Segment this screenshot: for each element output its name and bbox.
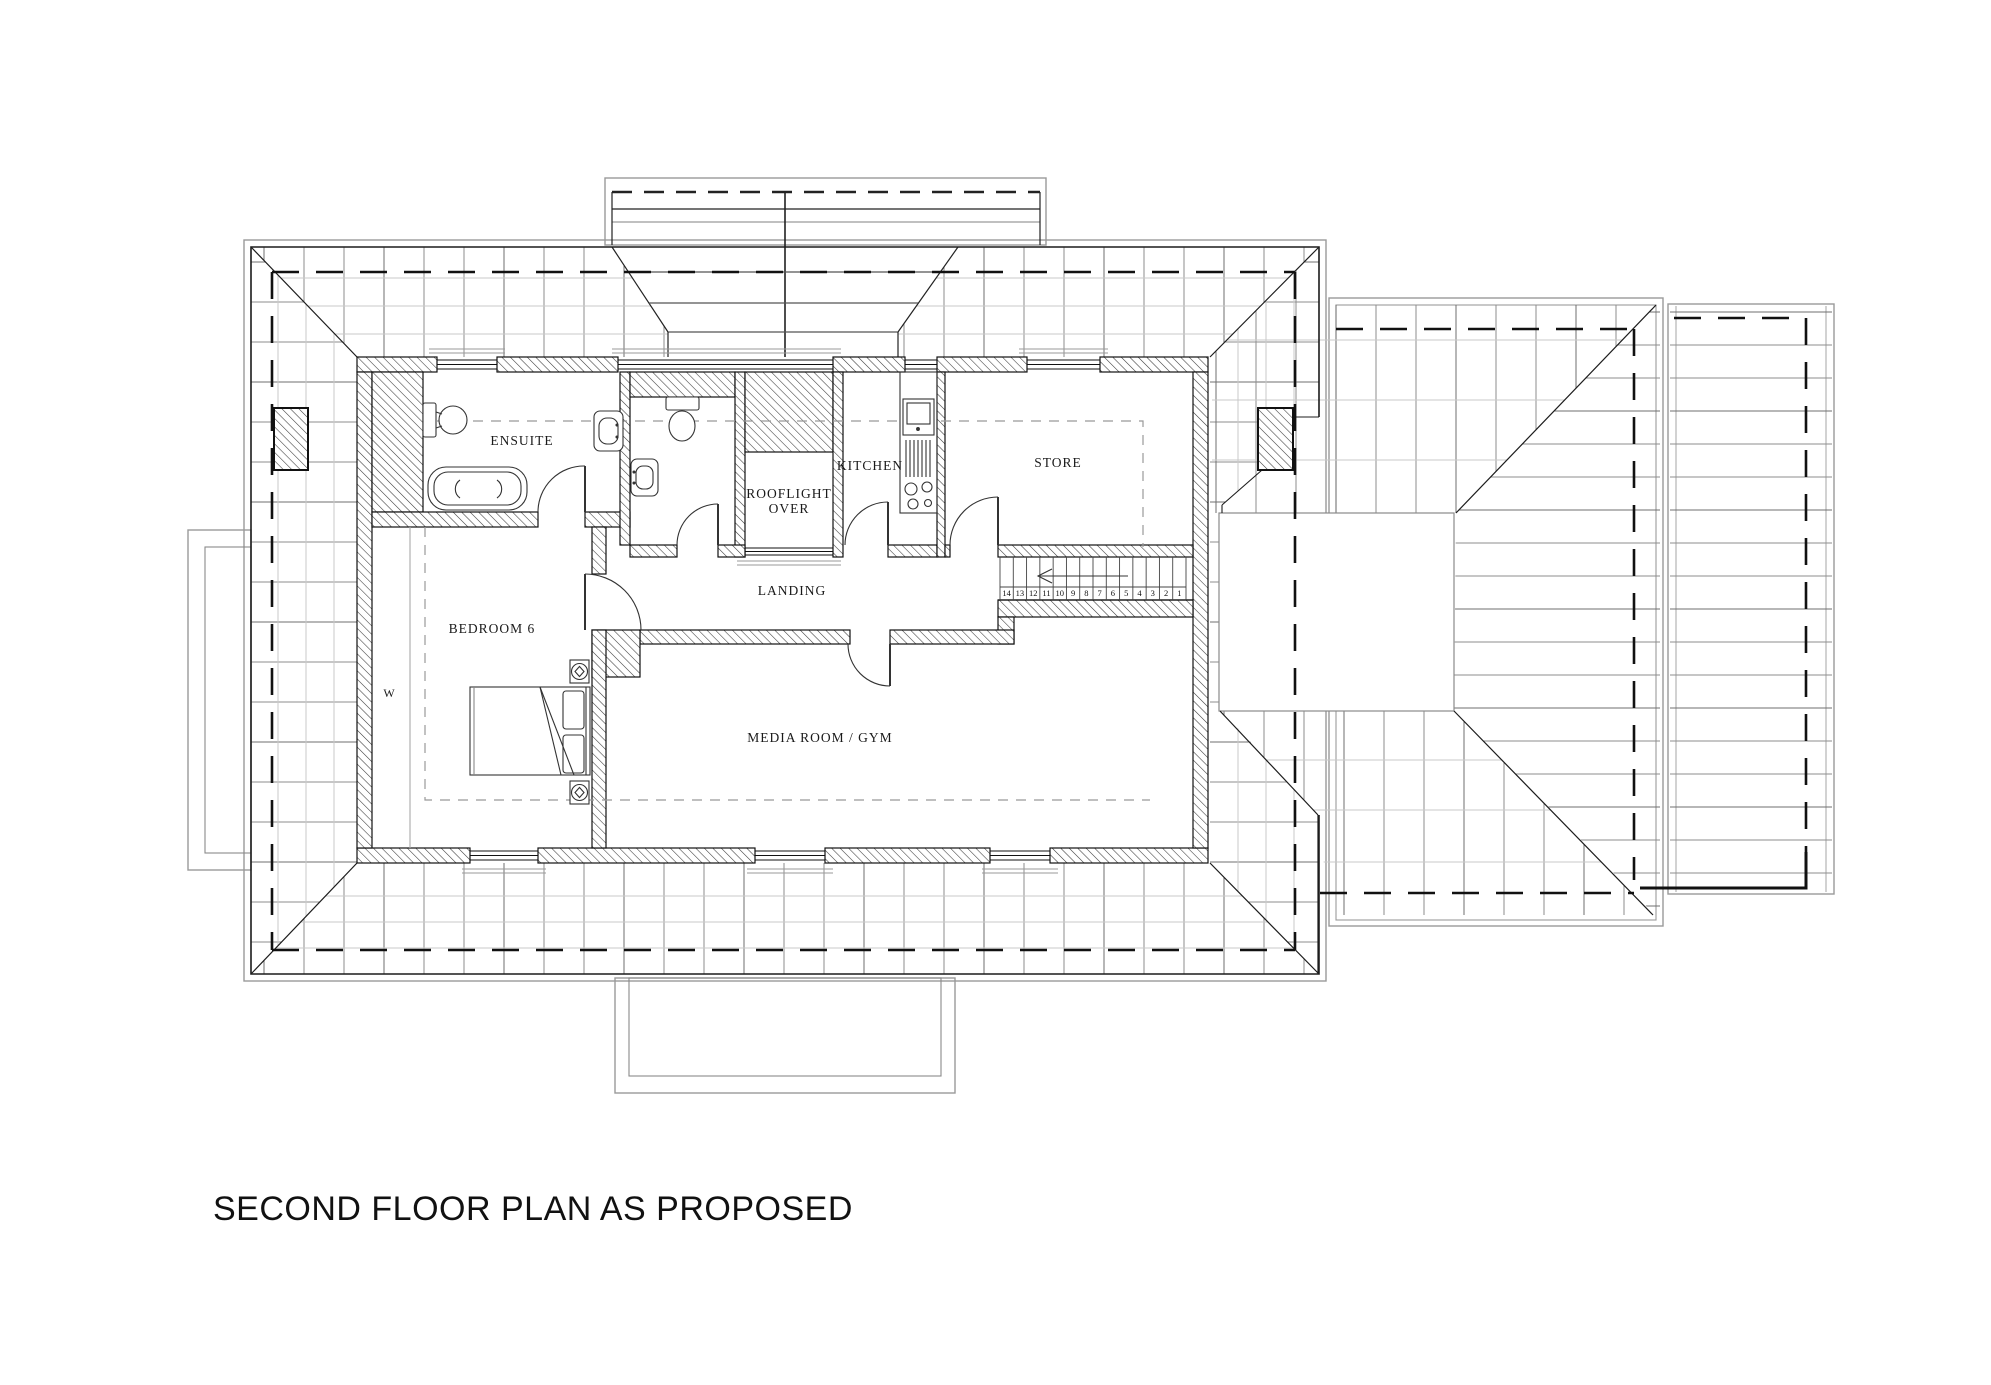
flat-roof-area	[1219, 513, 1454, 711]
bedside-unit-bottom	[570, 781, 589, 804]
stair-tread-number: 13	[1016, 588, 1025, 598]
bedside-unit-top	[570, 660, 589, 683]
drawing-sheet: 1413121110987654321	[0, 0, 1991, 1385]
basin-wc	[631, 459, 658, 496]
room-label-rooflight-2: OVER	[769, 501, 810, 516]
stair-tread-number: 8	[1084, 588, 1088, 598]
drawing-title: SECOND FLOOR PLAN AS PROPOSED	[213, 1190, 853, 1228]
tile-band	[1216, 246, 1616, 514]
basin-ensuite-right	[594, 411, 623, 451]
room-label-landing: LANDING	[758, 583, 827, 598]
room-label-media: MEDIA ROOM / GYM	[747, 730, 892, 745]
stair-tread-number: 3	[1151, 588, 1155, 598]
stair-tread-number: 12	[1029, 588, 1038, 598]
chimney-left	[274, 408, 308, 470]
tile-band	[264, 862, 1304, 975]
room-label-store: STORE	[1034, 455, 1082, 470]
tile-band	[1670, 312, 1832, 873]
stair-tread-number: 7	[1098, 588, 1102, 598]
tile-course-lines	[1220, 760, 1655, 862]
room-label-kitchen: KITCHEN	[837, 458, 903, 473]
bed	[470, 687, 590, 775]
room-label-ensuite: ENSUITE	[490, 433, 553, 448]
tile-band	[250, 262, 358, 942]
tile-course-lines	[278, 248, 334, 973]
room-label-wardrobe: W	[383, 686, 395, 700]
drainer	[906, 440, 930, 477]
room-label-bedroom: BEDROOM 6	[449, 621, 536, 636]
chimney-right	[1258, 408, 1293, 470]
basin-ensuite-left	[423, 403, 467, 437]
far-right-roof-corner-line	[1640, 852, 1806, 888]
tile-course-lines	[252, 896, 1318, 948]
floor-plan-canvas: 1413121110987654321	[0, 0, 1991, 1385]
stair-tread-number: 10	[1056, 588, 1065, 598]
bathtub	[428, 467, 527, 510]
stair-tread-number: 14	[1002, 588, 1011, 598]
stair-tread-number: 9	[1071, 588, 1075, 598]
stair-tread-number: 1	[1177, 588, 1181, 598]
stair-tread-number: 5	[1124, 588, 1128, 598]
stair-tread-number: 6	[1111, 588, 1115, 598]
room-label-rooflight-1: ROOFLIGHT	[746, 486, 832, 501]
stair-tread-number: 2	[1164, 588, 1168, 598]
stair-tread-number: 11	[1042, 588, 1050, 598]
